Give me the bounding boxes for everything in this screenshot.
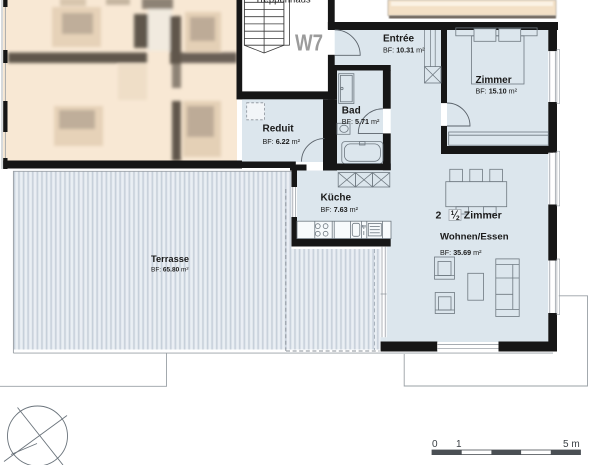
svg-text:1: 1: [456, 439, 462, 450]
svg-text:2: 2: [456, 215, 460, 222]
svg-text:Reduit: Reduit: [263, 124, 295, 135]
svg-text:BF: 10.31 m²: BF: 10.31 m²: [383, 46, 425, 55]
svg-text:Zimmer: Zimmer: [476, 75, 512, 86]
svg-text:Bad: Bad: [342, 106, 361, 117]
svg-text:BF: 65.80 m²: BF: 65.80 m²: [151, 267, 189, 274]
svg-text:2: 2: [436, 210, 442, 222]
svg-text:Terrasse: Terrasse: [151, 254, 189, 264]
svg-text:BF: 35.69 m²: BF: 35.69 m²: [440, 248, 482, 257]
svg-text:W7: W7: [295, 30, 323, 56]
svg-text:BF: 6.22 m²: BF: 6.22 m²: [263, 137, 301, 146]
svg-text:BF: 5.71 m²: BF: 5.71 m²: [342, 117, 380, 126]
svg-text:BF: 7.63 m²: BF: 7.63 m²: [321, 205, 359, 214]
svg-text:0: 0: [432, 439, 438, 450]
svg-text:Küche: Küche: [321, 193, 352, 204]
svg-text:5 m: 5 m: [563, 439, 580, 450]
svg-text:BF: 15.10 m²: BF: 15.10 m²: [476, 87, 518, 96]
svg-text:Treppenhaus: Treppenhaus: [255, 0, 311, 5]
svg-text:Entrée: Entrée: [383, 34, 415, 45]
svg-text:Zimmer: Zimmer: [464, 210, 502, 222]
svg-text:Wohnen/Essen: Wohnen/Essen: [440, 232, 509, 243]
svg-text:1: 1: [451, 210, 455, 217]
